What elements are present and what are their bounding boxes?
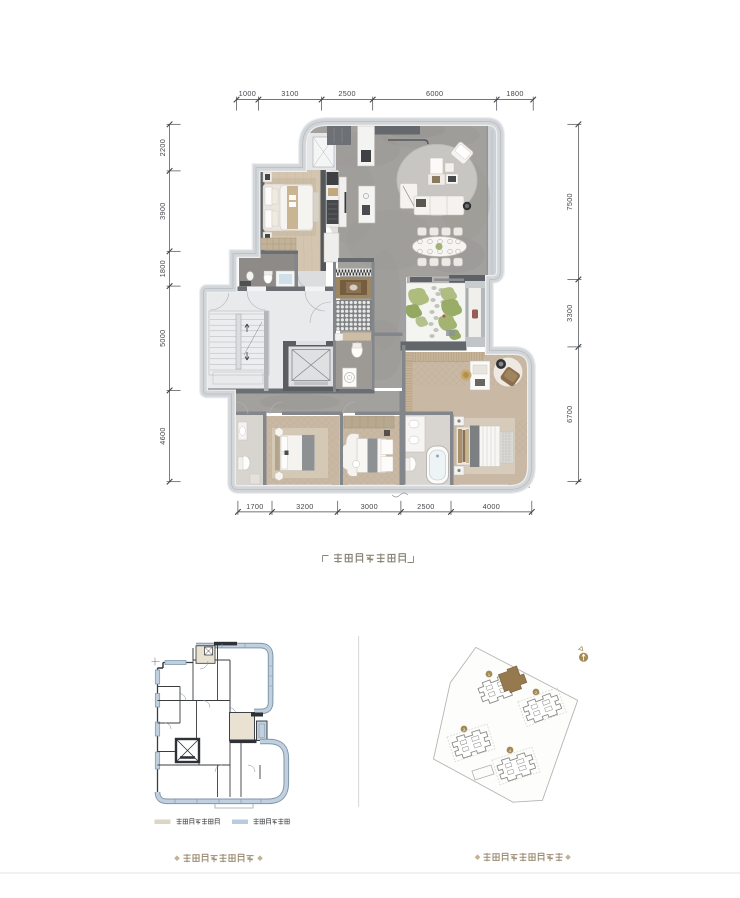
svg-text:3100: 3100 — [281, 89, 298, 98]
svg-text:2500: 2500 — [417, 502, 434, 511]
svg-text:1800: 1800 — [506, 89, 523, 98]
svg-text:1700: 1700 — [246, 502, 263, 511]
svg-text:6000: 6000 — [426, 89, 443, 98]
svg-text:4600: 4600 — [158, 427, 167, 444]
svg-text:1000: 1000 — [239, 89, 256, 98]
svg-text:2200: 2200 — [158, 139, 167, 156]
svg-text:5000: 5000 — [158, 329, 167, 346]
svg-text:3000: 3000 — [361, 502, 378, 511]
svg-text:2500: 2500 — [338, 89, 355, 98]
svg-text:3900: 3900 — [158, 202, 167, 219]
svg-text:7500: 7500 — [565, 193, 574, 210]
svg-text:6700: 6700 — [565, 405, 574, 422]
svg-text:3200: 3200 — [296, 502, 313, 511]
svg-text:4000: 4000 — [483, 502, 500, 511]
svg-text:1800: 1800 — [158, 260, 167, 277]
svg-text:3300: 3300 — [565, 304, 574, 321]
